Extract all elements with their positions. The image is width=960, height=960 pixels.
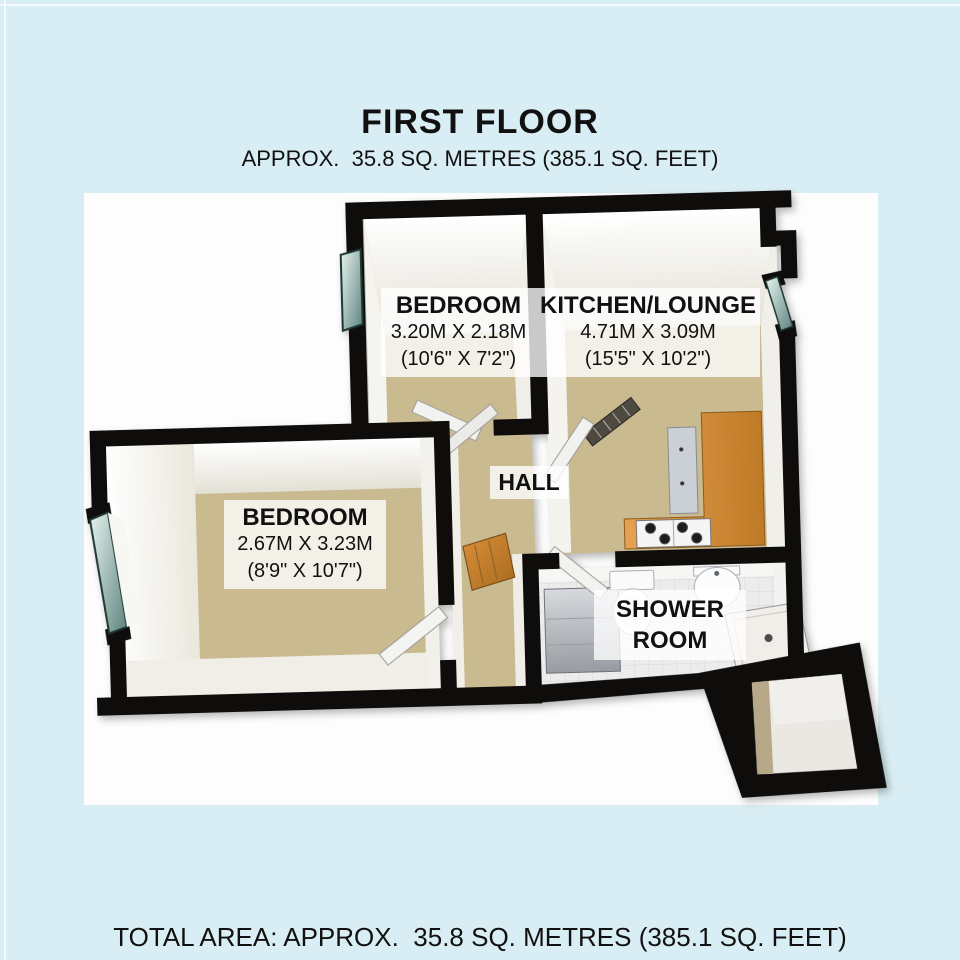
decor-top-line bbox=[0, 4, 960, 6]
kitchen-cabinet bbox=[668, 427, 698, 514]
page-title: FIRST FLOOR bbox=[0, 103, 960, 142]
left-bedroom-dim-metric: 2.67M X 3.23M bbox=[226, 531, 384, 558]
hall-name: HALL bbox=[492, 469, 566, 496]
total-area-text: TOTAL AREA: APPROX. 35.8 SQ. METRES (385… bbox=[0, 922, 960, 953]
top-bedroom-window bbox=[341, 249, 363, 331]
page: { "page": { "background_color": "#d9eef4… bbox=[0, 0, 960, 960]
top-bedroom-dim-imperial: (10'6" X 7'2") bbox=[383, 346, 534, 373]
top-bedroom-dim-metric: 3.20M X 2.18M bbox=[383, 319, 534, 346]
label-hall: HALL bbox=[490, 466, 568, 499]
shower-room-name-line1: SHOWER bbox=[596, 594, 744, 625]
decor-left-line bbox=[4, 0, 6, 960]
floor-plan bbox=[75, 182, 887, 822]
floor-plan-image bbox=[75, 182, 887, 822]
left-bedroom-dim-imperial: (8'9" X 10'7") bbox=[226, 558, 384, 585]
kitchen-lounge-dim-imperial: (15'5" X 10'2") bbox=[538, 346, 758, 373]
page-subtitle: APPROX. 35.8 SQ. METRES (385.1 SQ. FEET) bbox=[0, 146, 960, 172]
shower-room-name-line2: ROOM bbox=[596, 625, 744, 656]
label-top-bedroom: BEDROOM 3.20M X 2.18M (10'6" X 7'2") bbox=[381, 288, 536, 377]
floor-plan-panel bbox=[84, 193, 878, 805]
kitchen-lounge-dim-metric: 4.71M X 3.09M bbox=[538, 319, 758, 346]
left-bedroom-name: BEDROOM bbox=[226, 504, 384, 531]
label-left-bedroom: BEDROOM 2.67M X 3.23M (8'9" X 10'7") bbox=[224, 500, 386, 589]
hob bbox=[636, 519, 711, 548]
label-kitchen-lounge: KITCHEN/LOUNGE 4.71M X 3.09M (15'5" X 10… bbox=[536, 288, 760, 377]
top-bedroom-name: BEDROOM bbox=[383, 292, 534, 319]
label-shower-room: SHOWER ROOM bbox=[594, 590, 746, 660]
kitchen-lounge-name: KITCHEN/LOUNGE bbox=[538, 292, 758, 319]
